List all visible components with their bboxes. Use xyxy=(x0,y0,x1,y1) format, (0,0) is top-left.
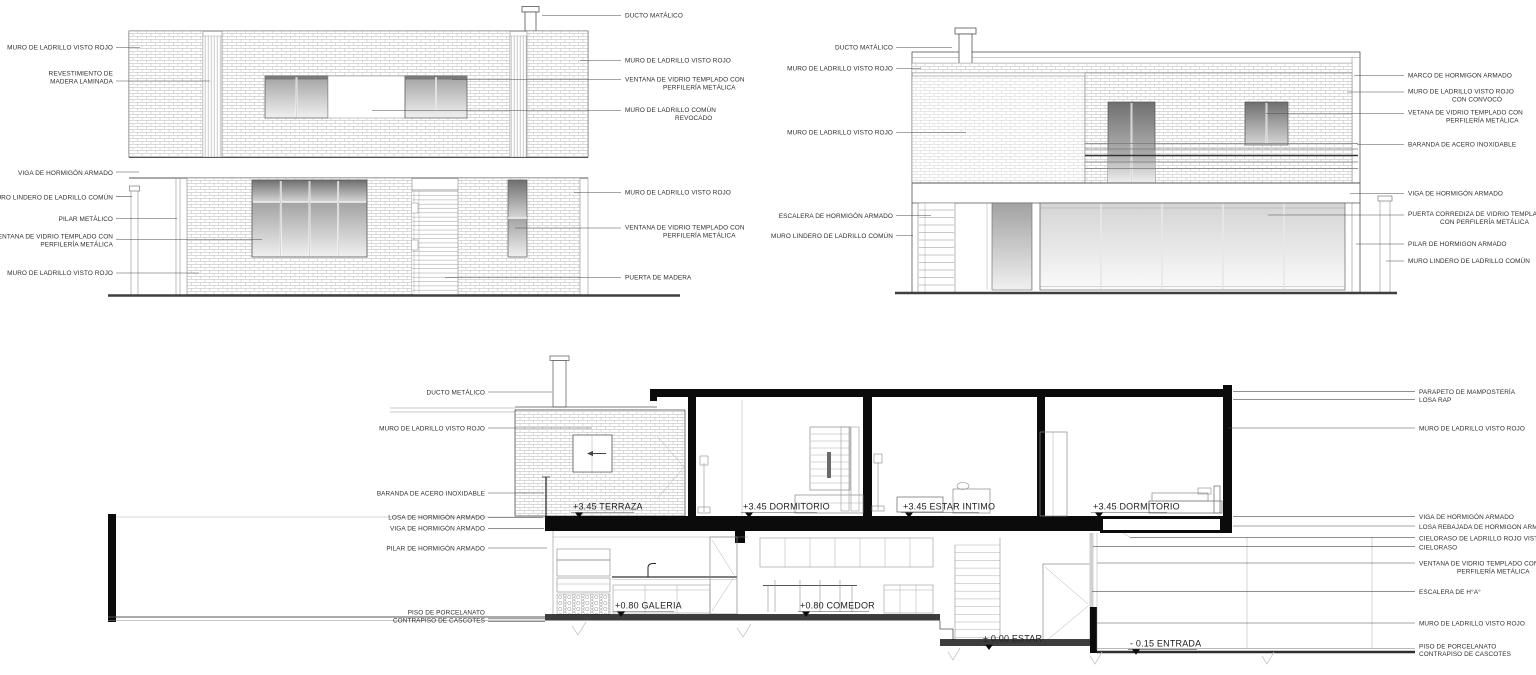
annotation-text: CONTRAPISO DE CASCOTES xyxy=(1419,651,1511,658)
main-stair xyxy=(955,538,1000,640)
rear-elevation xyxy=(895,28,1397,293)
annotation-text: REVESTIMIENTO DE xyxy=(49,71,113,78)
wall-cut-right-parapet xyxy=(1223,385,1232,533)
party-wall-right xyxy=(1378,196,1392,293)
level-text: ± 0.00 ESTAR xyxy=(983,634,1042,644)
annotation: LOSA REBAJADA DE HORMIGON ARMADO xyxy=(1233,524,1536,531)
level-text: +3.45 DORMITORIO xyxy=(743,502,830,512)
annotation-text: VIGA DE HORMIGÓN ARMADO xyxy=(1419,512,1514,521)
annotation: MURO DE LADRILLO VISTO ROJO xyxy=(7,270,199,277)
glass-panel xyxy=(992,203,1032,290)
dropped-slab-outline xyxy=(1102,518,1222,532)
level-text: +0.80 COMEDOR xyxy=(800,601,875,611)
parapet-brick-strip xyxy=(912,63,1352,73)
annotation: PILAR DE HORMIGÓN ARMADO xyxy=(386,544,547,553)
floor-slab-080 xyxy=(545,615,940,621)
balcony-door-window xyxy=(1108,102,1155,183)
annotation-text: CONTRAPISO DE CASCOTES xyxy=(393,618,485,625)
wall-cut-b xyxy=(863,397,872,516)
large-window xyxy=(252,180,367,257)
annotation: BARANDA DE ACERO INOXIDABLE xyxy=(1357,142,1516,149)
terrace-window xyxy=(573,435,612,472)
column-shaft xyxy=(1090,533,1094,607)
level-marker: +3.45 ESTAR INTIMO xyxy=(901,502,995,519)
concrete-beam-band xyxy=(912,183,1360,203)
annotation-text: PERFILERÍA METÁLICA xyxy=(663,231,736,240)
annotation-text: PERFILERÍA METÁLICA xyxy=(40,240,113,249)
level-marker: +3.45 DORMITORIO xyxy=(1091,502,1180,519)
annotation: PILAR METÁLICO xyxy=(59,214,177,223)
annotation-text: BARANDA DE ACERO INOXIDABLE xyxy=(377,491,485,498)
annotation: DUCTO METÁLICO xyxy=(427,388,552,397)
annotation: MURO DE LADRILLO VISTO ROJO xyxy=(1097,621,1525,628)
annotation-text: PERFILERÍA METÁLICA xyxy=(663,83,736,92)
annotation: ESCALERA DE H°A° xyxy=(1092,588,1481,596)
bedroom1-interior xyxy=(698,400,863,516)
annotation-text: VENTANA DE VIDRIO TEMPLADO CON xyxy=(625,225,745,232)
annotation: MURO LINDERO DE LADRILLO COMÚN xyxy=(0,193,132,202)
annotation-text: MURO DE LADRILLO VISTO ROJO xyxy=(7,45,113,52)
annotation-text: MURO LINDERO DE LADRILLO COMÚN xyxy=(0,193,113,202)
annotation-text: VENTANA DE VIDRIO TEMPLADO CON xyxy=(1419,561,1536,568)
annotation-text: MARCO DE HORMIGON ARMADO xyxy=(1408,73,1512,80)
annotation: MURO LINDERO DE LADRILLO COMÚN xyxy=(1386,256,1530,265)
drawing-canvas: MURO DE LADRILLO VISTO ROJO REVESTIMIENT… xyxy=(0,0,1536,675)
front-elevation xyxy=(108,7,680,296)
annotation-text: PISO DE PORCELANATO xyxy=(408,610,485,617)
annotation-text: MURO DE LADRILLO VISTO ROJO xyxy=(1408,89,1514,96)
rendered-wall-gap xyxy=(328,76,405,118)
brick-pier-left xyxy=(129,31,203,157)
concrete-stair xyxy=(918,203,955,293)
brick-volume-left xyxy=(912,76,1085,183)
estar-door xyxy=(1043,564,1090,645)
annotation-text: MADERA LAMINADA xyxy=(50,79,114,86)
annotation-text: PISO DE PORCELANATO xyxy=(1419,644,1496,651)
annotation: CIELORASO xyxy=(1093,545,1457,552)
column-cut xyxy=(1090,607,1097,653)
annotation-text: ESCALERA DE H°A° xyxy=(1419,588,1481,596)
annotation-text: VENTANA DE VIDRIO TEMPLADO CON xyxy=(0,234,113,241)
annotation-text: CON CONVOCÓ xyxy=(1452,95,1502,104)
upper-window-right xyxy=(405,76,467,118)
terrace-roof-edge xyxy=(515,407,657,410)
annotation: VIGA DE HORMIGÓN ARMADO xyxy=(1233,512,1514,521)
roof-slab-left-cap xyxy=(650,389,657,401)
annotation: MURO DE LADRILLO VISTO ROJO xyxy=(1228,426,1525,433)
annotation-text: MURO LINDERO DE LADRILLO COMÚN xyxy=(1408,256,1530,265)
annotation-text: CIELORASO xyxy=(1419,545,1457,552)
annotation-text: LOSA DE HORMIGÓN ARMADO xyxy=(388,513,485,522)
annotation: MURO DE LADRILLO VISTO ROJO xyxy=(787,66,921,73)
metal-duct xyxy=(550,356,569,407)
annotation: VENTANA DE VIDRIO TEMPLADO CONPERFILERÍA… xyxy=(1097,561,1536,576)
annotation: DUCTO MATÁLICO xyxy=(835,43,952,52)
annotation: DUCTO MATÁLICO xyxy=(542,11,683,20)
level-text: +3.45 DORMITORIO xyxy=(1093,502,1180,512)
annotation: VIGA DE HORMIGÓN ARMADO xyxy=(1350,189,1503,198)
annotation: MURO DE LADRILLO VISTO ROJOCON CONVOCÓ xyxy=(1347,89,1514,104)
wall-cut-c xyxy=(1037,397,1045,516)
annotation: PILAR DE HORMIGON ARMADO xyxy=(1356,241,1507,248)
neighbor-roof-lines xyxy=(390,408,515,412)
annotation-text: MURO DE LADRILLO VISTO ROJO xyxy=(787,130,893,137)
upper-window-left xyxy=(265,76,328,118)
annotation: PARAPETO DE MAMPOSTERÍA xyxy=(1233,387,1516,396)
annotation-text: MURO DE LADRILLO VISTO ROJO xyxy=(1419,426,1525,433)
annotation: MURO DE LADRILLO VISTO ROJO xyxy=(574,190,731,197)
annotation-text: PERFILERÍA METÁLICA xyxy=(1446,116,1519,125)
annotation-text: ESCALERA DE HORMIGÓN ARMADO xyxy=(779,211,893,220)
level-text: - 0.15 ENTRADA xyxy=(1130,639,1201,649)
annotation: MURO DE LADRILLO VISTO ROJO xyxy=(7,45,140,52)
sliding-glass-wall xyxy=(1040,203,1345,290)
annotation-text: PUERTA CORREDIZA DE VIDRIO TEMPLADO xyxy=(1408,211,1536,218)
annotation: MARCO DE HORMIGON ARMADO xyxy=(1354,73,1512,80)
annotation: MURO LINDERO DE LADRILLO COMÚN xyxy=(771,231,913,240)
annotation-text: MURO DE LADRILLO VISTO ROJO xyxy=(625,58,731,65)
annotation-text: PILAR DE HORMIGON ARMADO xyxy=(1408,241,1507,248)
annotation-text: DUCTO METÁLICO xyxy=(427,388,485,397)
annotation: MURO DE LADRILLO VISTO ROJO xyxy=(580,58,731,65)
annotation-text: MURO DE LADRILLO VISTO ROJO xyxy=(787,66,893,73)
roof-slab-cut xyxy=(650,389,1232,397)
annotation-text: PILAR METÁLICO xyxy=(59,214,113,223)
annotation-text: VETANA DE VIDRIO TEMPLADO CON xyxy=(1408,110,1523,117)
annotation-text: VIGA DE HORMIGÓN ARMADO xyxy=(1408,189,1503,198)
upper-window xyxy=(1245,102,1288,145)
annotation: LOSA RAP xyxy=(1233,397,1451,404)
annotation-text: PARAPETO DE MAMPOSTERÍA xyxy=(1419,387,1516,396)
annotation-text: LOSA RAP xyxy=(1419,397,1451,404)
annotation-text: CIELORASO DE LADRILLO ROJO VISTO xyxy=(1419,536,1536,543)
wood-cladding-right xyxy=(510,36,527,157)
party-wall-left xyxy=(130,186,140,295)
annotation-text: MURO LINDERO DE LADRILLO COMÚN xyxy=(771,231,893,240)
annotation-text: MURO DE LADRILLO COMÚN xyxy=(625,105,716,114)
level-text: +0.80 GALERIA xyxy=(615,601,682,611)
wood-cladding-left xyxy=(203,36,222,157)
annotation-text: DUCTO MATÁLICO xyxy=(835,43,893,52)
annotation-text: PERFILERÍA METÁLICA xyxy=(1457,567,1530,576)
annotation: PISO DE PORCELANATOCONTRAPISO DE CASCOTE… xyxy=(1419,644,1511,659)
annotation-text: VIGA DE HORMIGÓN ARMADO xyxy=(18,168,113,177)
annotation-text: REVOCADO xyxy=(675,115,712,122)
annotation-text: BARANDA DE ACERO INOXIDABLE xyxy=(1408,142,1516,149)
annotation-text: VENTANA DE VIDRIO TEMPLADO CON xyxy=(625,77,745,84)
annotation-text: PUERTA DE MADERA xyxy=(625,275,692,282)
annotation: VIGA DE HORMIGÓN ARMADO xyxy=(18,168,139,177)
annotation-text: PILAR DE HORMIGÓN ARMADO xyxy=(386,544,485,553)
annotation-text: CON PERFILERÍA METÁLICA xyxy=(1440,217,1530,226)
floor-slab-cut xyxy=(545,516,1101,531)
narrow-window xyxy=(508,180,527,257)
level-marker: ± 0.00 ESTAR xyxy=(981,634,1042,651)
party-wall-cut-left xyxy=(108,514,116,622)
metal-duct xyxy=(522,7,539,32)
floor-step xyxy=(940,621,953,641)
level-marker: +3.45 DORMITORIO xyxy=(741,502,830,519)
concrete-beam-band xyxy=(129,158,588,179)
annotation-text: MURO DE LADRILLO VISTO ROJO xyxy=(1419,621,1525,628)
brick-pier-right xyxy=(527,31,588,157)
architectural-drawing-sheet: MURO DE LADRILLO VISTO ROJO REVESTIMIENT… xyxy=(0,0,1536,675)
annotation-text: MURO DE LADRILLO VISTO ROJO xyxy=(7,270,113,277)
level-text: +3.45 ESTAR INTIMO xyxy=(903,502,995,512)
annotation-text: VIGA DE HORMIGÓN ARMADO xyxy=(390,524,485,533)
annotation-text: LOSA REBAJADA DE HORMIGON ARMADO xyxy=(1419,524,1536,531)
annotation-text: DUCTO MATÁLICO xyxy=(625,11,683,20)
annotation: VIGA DE HORMIGÓN ARMADO xyxy=(390,524,544,533)
annotation-text: MURO DE LADRILLO VISTO ROJO xyxy=(379,426,485,433)
annotation: CIELORASO DE LADRILLO ROJO VISTO xyxy=(1130,536,1536,543)
steel-column xyxy=(176,178,180,295)
annotation: ESCALERA DE HORMIGÓN ARMADO xyxy=(779,211,931,220)
wall-cut-a xyxy=(688,397,696,516)
level-text: +3.45 TERRAZA xyxy=(573,502,643,512)
annotation-text: MURO DE LADRILLO VISTO ROJO xyxy=(625,190,731,197)
